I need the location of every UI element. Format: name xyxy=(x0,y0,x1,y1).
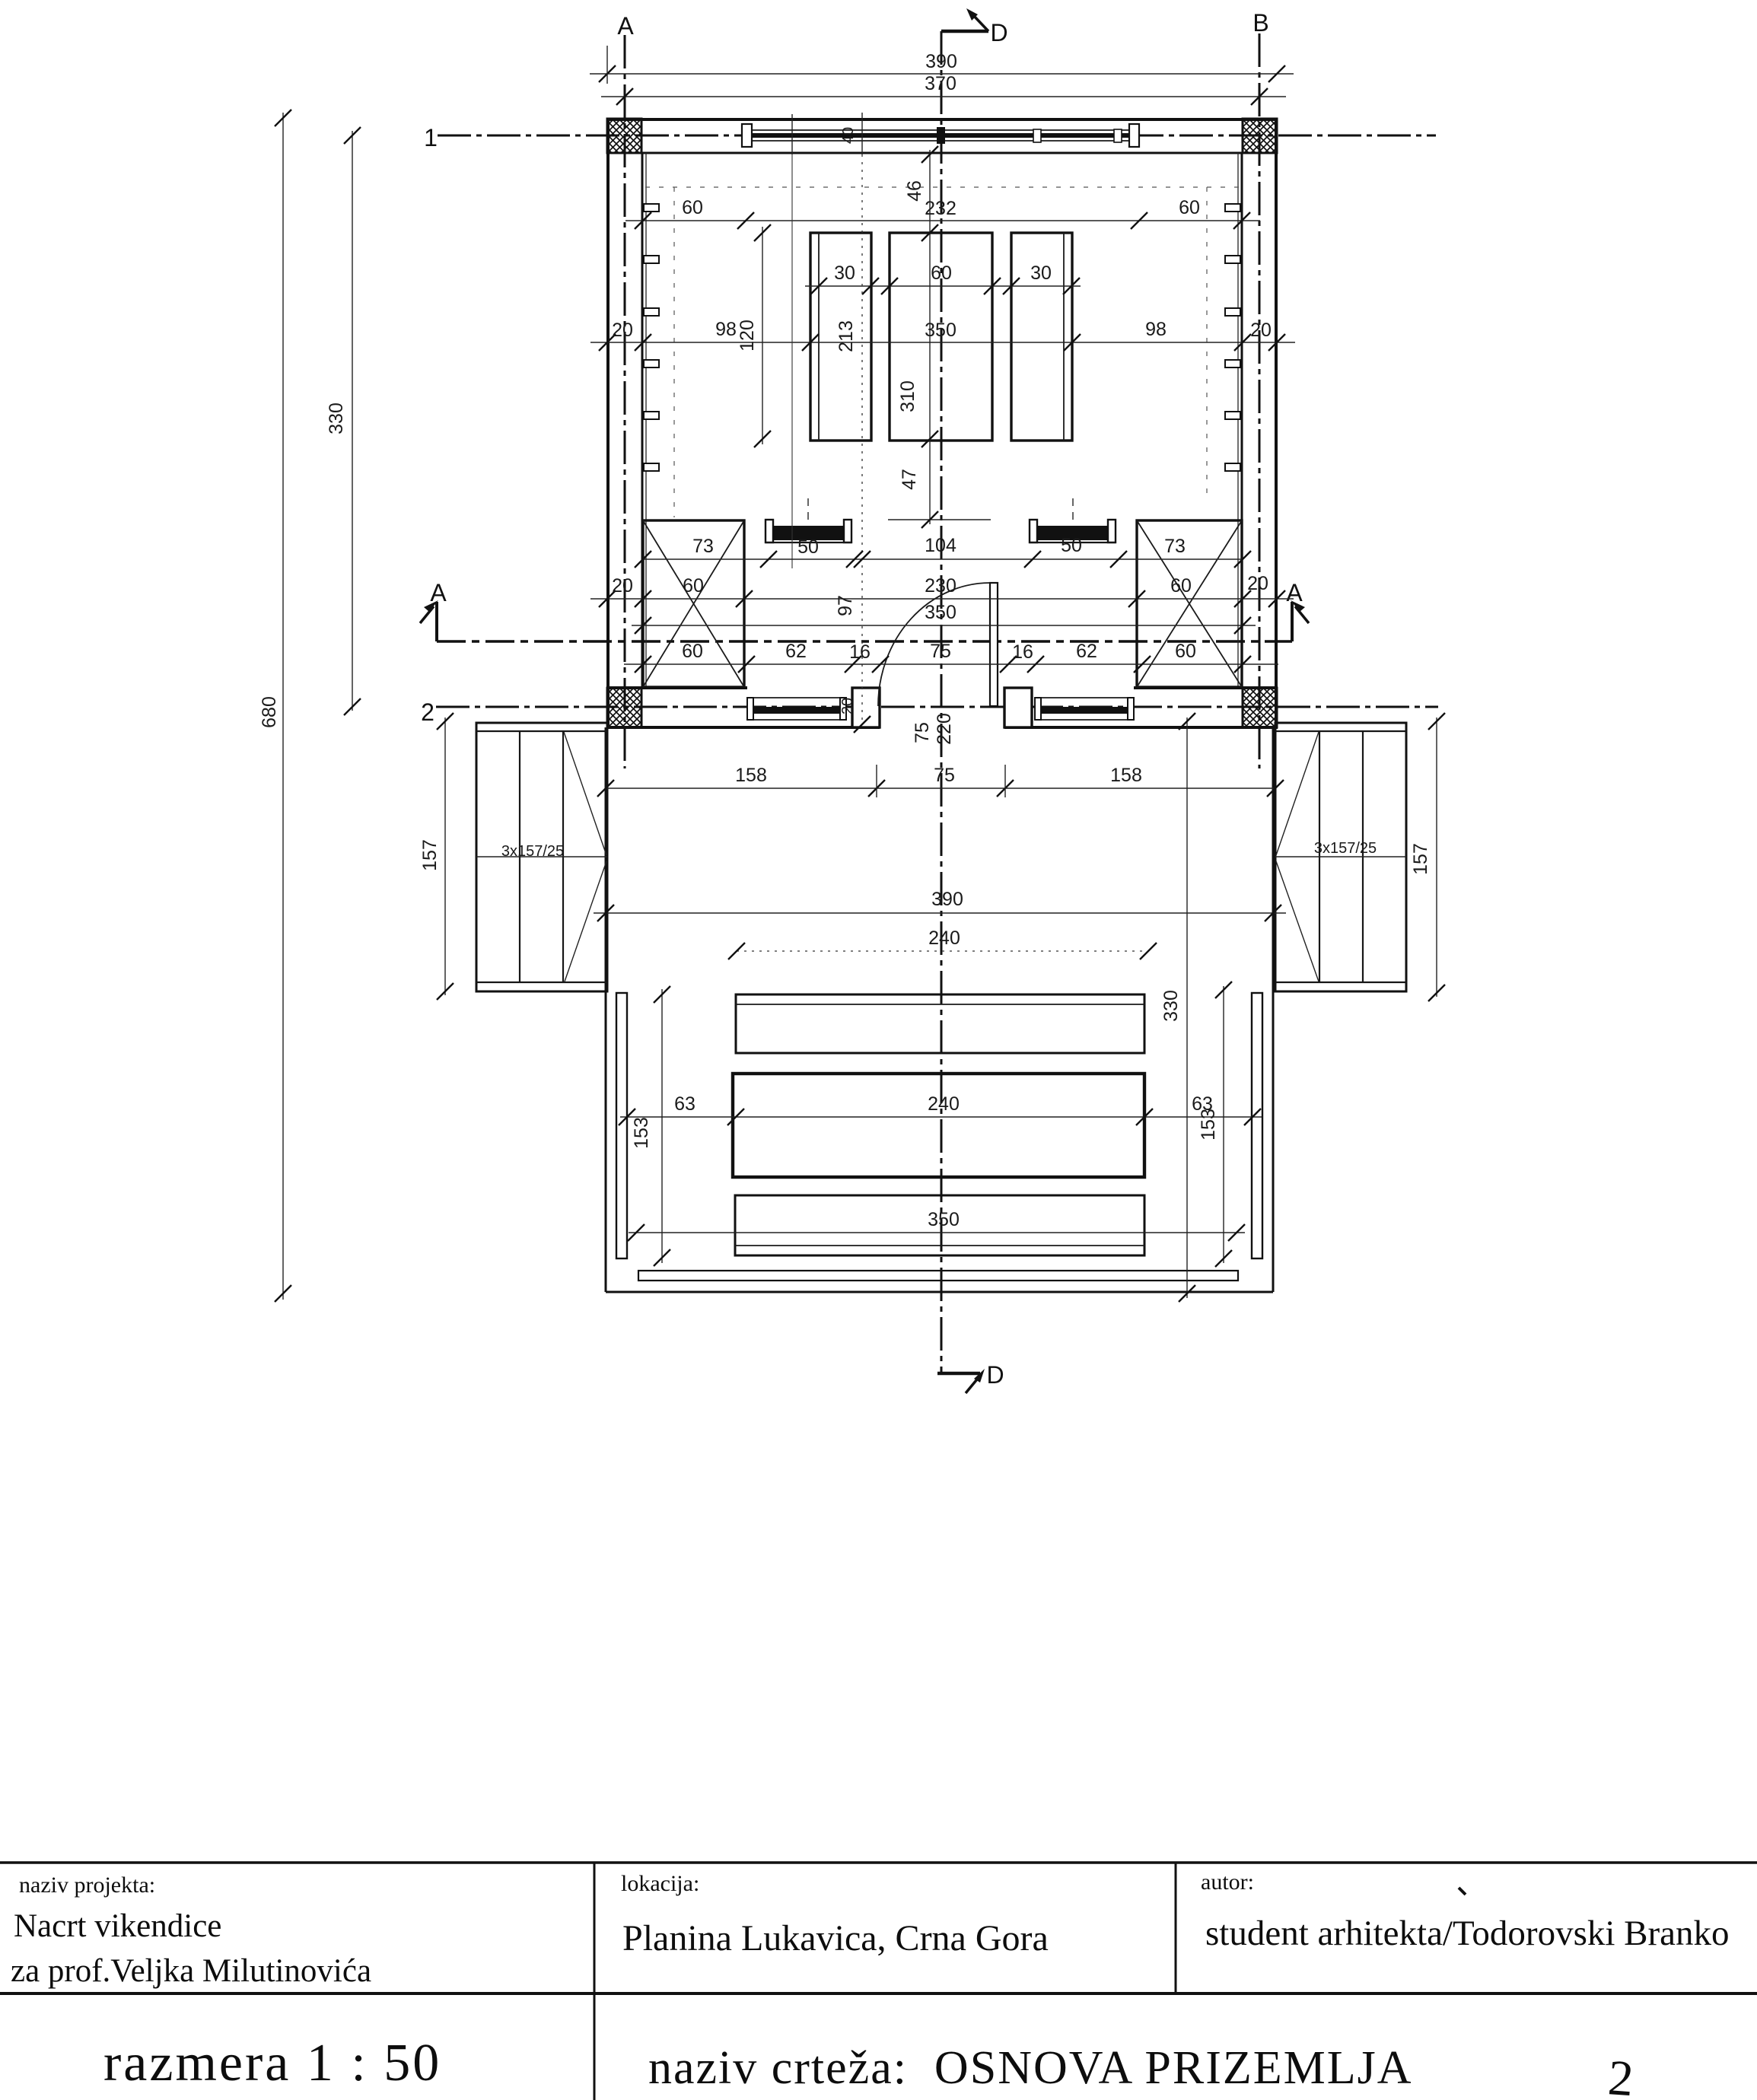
svg-text:46: 46 xyxy=(904,180,925,202)
svg-text:157: 157 xyxy=(1410,843,1431,875)
svg-text:20: 20 xyxy=(1247,573,1268,594)
svg-text:390: 390 xyxy=(931,889,963,910)
svg-text:158: 158 xyxy=(1110,765,1142,786)
svg-text:20: 20 xyxy=(839,698,856,714)
svg-text:60: 60 xyxy=(1179,197,1200,218)
svg-text:60: 60 xyxy=(1170,575,1192,597)
svg-text:student arhitekta/Todorovski B: student arhitekta/Todorovski Branko xyxy=(1205,1914,1730,1953)
svg-text:20: 20 xyxy=(1250,320,1272,341)
svg-text:Nacrt vikendice: Nacrt vikendice xyxy=(14,1908,221,1944)
svg-text:63: 63 xyxy=(674,1093,695,1115)
svg-text:330: 330 xyxy=(1160,990,1182,1022)
svg-text:A: A xyxy=(430,579,447,606)
svg-text:40: 40 xyxy=(840,127,857,144)
svg-text:60: 60 xyxy=(931,262,952,284)
svg-text:73: 73 xyxy=(1164,536,1186,557)
svg-text:B: B xyxy=(1252,9,1268,37)
svg-text:240: 240 xyxy=(928,1093,960,1115)
svg-text:D: D xyxy=(990,19,1007,46)
svg-text:47: 47 xyxy=(899,469,920,490)
svg-text:3x157/25: 3x157/25 xyxy=(501,843,564,860)
svg-text:20: 20 xyxy=(612,575,633,597)
svg-text:16: 16 xyxy=(849,641,871,663)
svg-text:50: 50 xyxy=(797,536,819,558)
svg-text:Planina Lukavica, Crna Gora: Planina Lukavica, Crna Gora xyxy=(622,1918,1049,1958)
svg-text:60: 60 xyxy=(1175,641,1196,662)
svg-text:lokacija:: lokacija: xyxy=(621,1871,699,1896)
svg-text:62: 62 xyxy=(785,641,807,662)
svg-text:230: 230 xyxy=(925,575,956,597)
svg-text:60: 60 xyxy=(682,197,703,218)
svg-text:60: 60 xyxy=(682,641,703,662)
svg-text:A: A xyxy=(617,12,634,40)
svg-text:30: 30 xyxy=(834,262,855,284)
svg-text:naziv crteža: OSNOVA PRIZEMLJ: naziv crteža: OSNOVA PRIZEMLJA xyxy=(648,2042,1413,2094)
svg-text:20: 20 xyxy=(612,320,633,341)
svg-text:62: 62 xyxy=(1076,641,1097,662)
svg-text:310: 310 xyxy=(897,380,918,412)
svg-text:370: 370 xyxy=(925,73,956,94)
svg-text:50: 50 xyxy=(1061,535,1082,556)
svg-text:autor:: autor: xyxy=(1201,1869,1254,1895)
svg-text:240: 240 xyxy=(928,928,960,949)
svg-text:153: 153 xyxy=(631,1117,652,1149)
svg-text:120: 120 xyxy=(737,320,758,352)
svg-text:104: 104 xyxy=(925,535,956,556)
svg-text:158: 158 xyxy=(735,765,767,786)
svg-text:D: D xyxy=(986,1361,1004,1389)
svg-text:75: 75 xyxy=(934,765,955,786)
svg-text:3x157/25: 3x157/25 xyxy=(1314,840,1377,857)
svg-text:30: 30 xyxy=(1030,262,1052,284)
svg-text:75: 75 xyxy=(912,722,933,743)
svg-text:153: 153 xyxy=(1198,1109,1219,1141)
svg-text:97: 97 xyxy=(835,595,856,616)
svg-text:za prof.Veljka Milutinovića: za prof.Veljka Milutinovića xyxy=(11,1953,371,1989)
svg-text:razmera 1 : 50: razmera 1 : 50 xyxy=(103,2034,441,2092)
svg-text:2: 2 xyxy=(1606,2050,1635,2100)
svg-text:60: 60 xyxy=(683,575,704,597)
svg-text:213: 213 xyxy=(836,320,857,352)
svg-text:330: 330 xyxy=(326,402,347,434)
svg-text:157: 157 xyxy=(419,839,441,871)
svg-text:350: 350 xyxy=(928,1209,960,1230)
svg-text:A: A xyxy=(1286,579,1303,606)
svg-text:2: 2 xyxy=(421,698,434,726)
svg-text:16: 16 xyxy=(1012,641,1033,663)
svg-text:75: 75 xyxy=(930,641,951,662)
svg-text:220: 220 xyxy=(934,713,955,745)
svg-text:73: 73 xyxy=(692,536,714,557)
svg-text:390: 390 xyxy=(925,51,957,72)
svg-text:680: 680 xyxy=(259,696,280,728)
svg-text:naziv projekta:: naziv projekta: xyxy=(19,1873,155,1898)
svg-text:350: 350 xyxy=(925,602,956,623)
svg-text:1: 1 xyxy=(424,124,438,151)
svg-text:98: 98 xyxy=(1145,319,1167,340)
svg-text:98: 98 xyxy=(715,319,737,340)
